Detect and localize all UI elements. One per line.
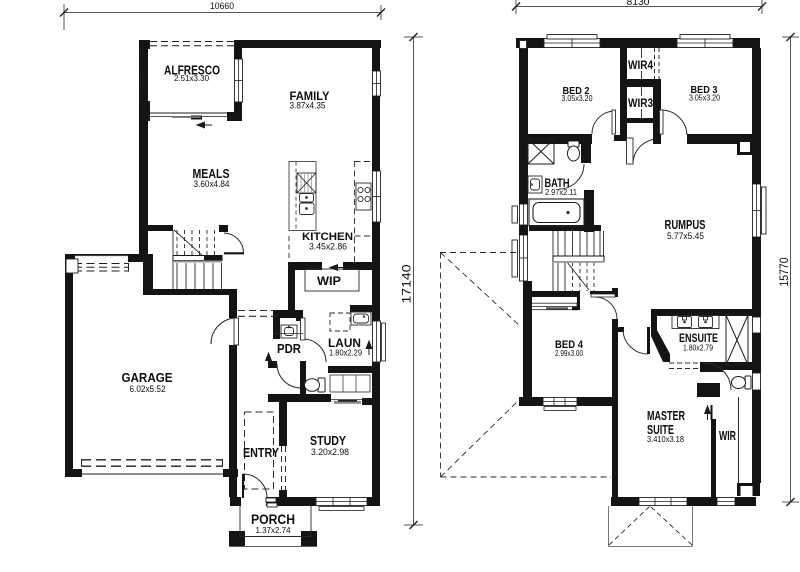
svg-text:17140: 17140 — [402, 265, 414, 304]
svg-text:3.20x2.98: 3.20x2.98 — [311, 447, 349, 457]
svg-text:3.05x3.20: 3.05x3.20 — [562, 93, 593, 103]
svg-text:ENTRY: ENTRY — [243, 445, 279, 460]
svg-text:10660: 10660 — [210, 1, 234, 12]
svg-text:8130: 8130 — [627, 0, 650, 8]
svg-text:WIR: WIR — [719, 429, 736, 443]
svg-text:WIP: WIP — [317, 274, 341, 288]
svg-text:1.80x2.79: 1.80x2.79 — [683, 343, 713, 353]
svg-text:15770: 15770 — [779, 258, 791, 287]
svg-text:3.410x3.18: 3.410x3.18 — [647, 434, 684, 444]
svg-text:RUMPUS: RUMPUS — [665, 217, 706, 232]
svg-text:3.87x4.35: 3.87x4.35 — [290, 101, 326, 111]
svg-text:WIR4: WIR4 — [628, 60, 654, 72]
svg-text:WIR3: WIR3 — [628, 98, 653, 110]
svg-text:GARAGE: GARAGE — [122, 371, 173, 385]
svg-text:2.97x2.11: 2.97x2.11 — [545, 187, 577, 197]
svg-text:PDR: PDR — [277, 342, 301, 356]
svg-text:1.37x2.74: 1.37x2.74 — [256, 525, 291, 535]
svg-text:STUDY: STUDY — [310, 433, 346, 448]
svg-text:MASTER: MASTER — [647, 409, 685, 423]
svg-text:3.05x3.20: 3.05x3.20 — [689, 93, 720, 103]
svg-text:5.77x5.45: 5.77x5.45 — [667, 231, 704, 241]
svg-text:1.80x2.29: 1.80x2.29 — [329, 348, 362, 358]
svg-text:3.60x4.84: 3.60x4.84 — [194, 179, 230, 189]
svg-text:6.02x5.52: 6.02x5.52 — [130, 384, 166, 395]
svg-text:2.99x3.00: 2.99x3.00 — [555, 348, 583, 358]
svg-text:2.51x3.30: 2.51x3.30 — [174, 73, 209, 83]
svg-text:3.45x2.86: 3.45x2.86 — [309, 242, 347, 252]
